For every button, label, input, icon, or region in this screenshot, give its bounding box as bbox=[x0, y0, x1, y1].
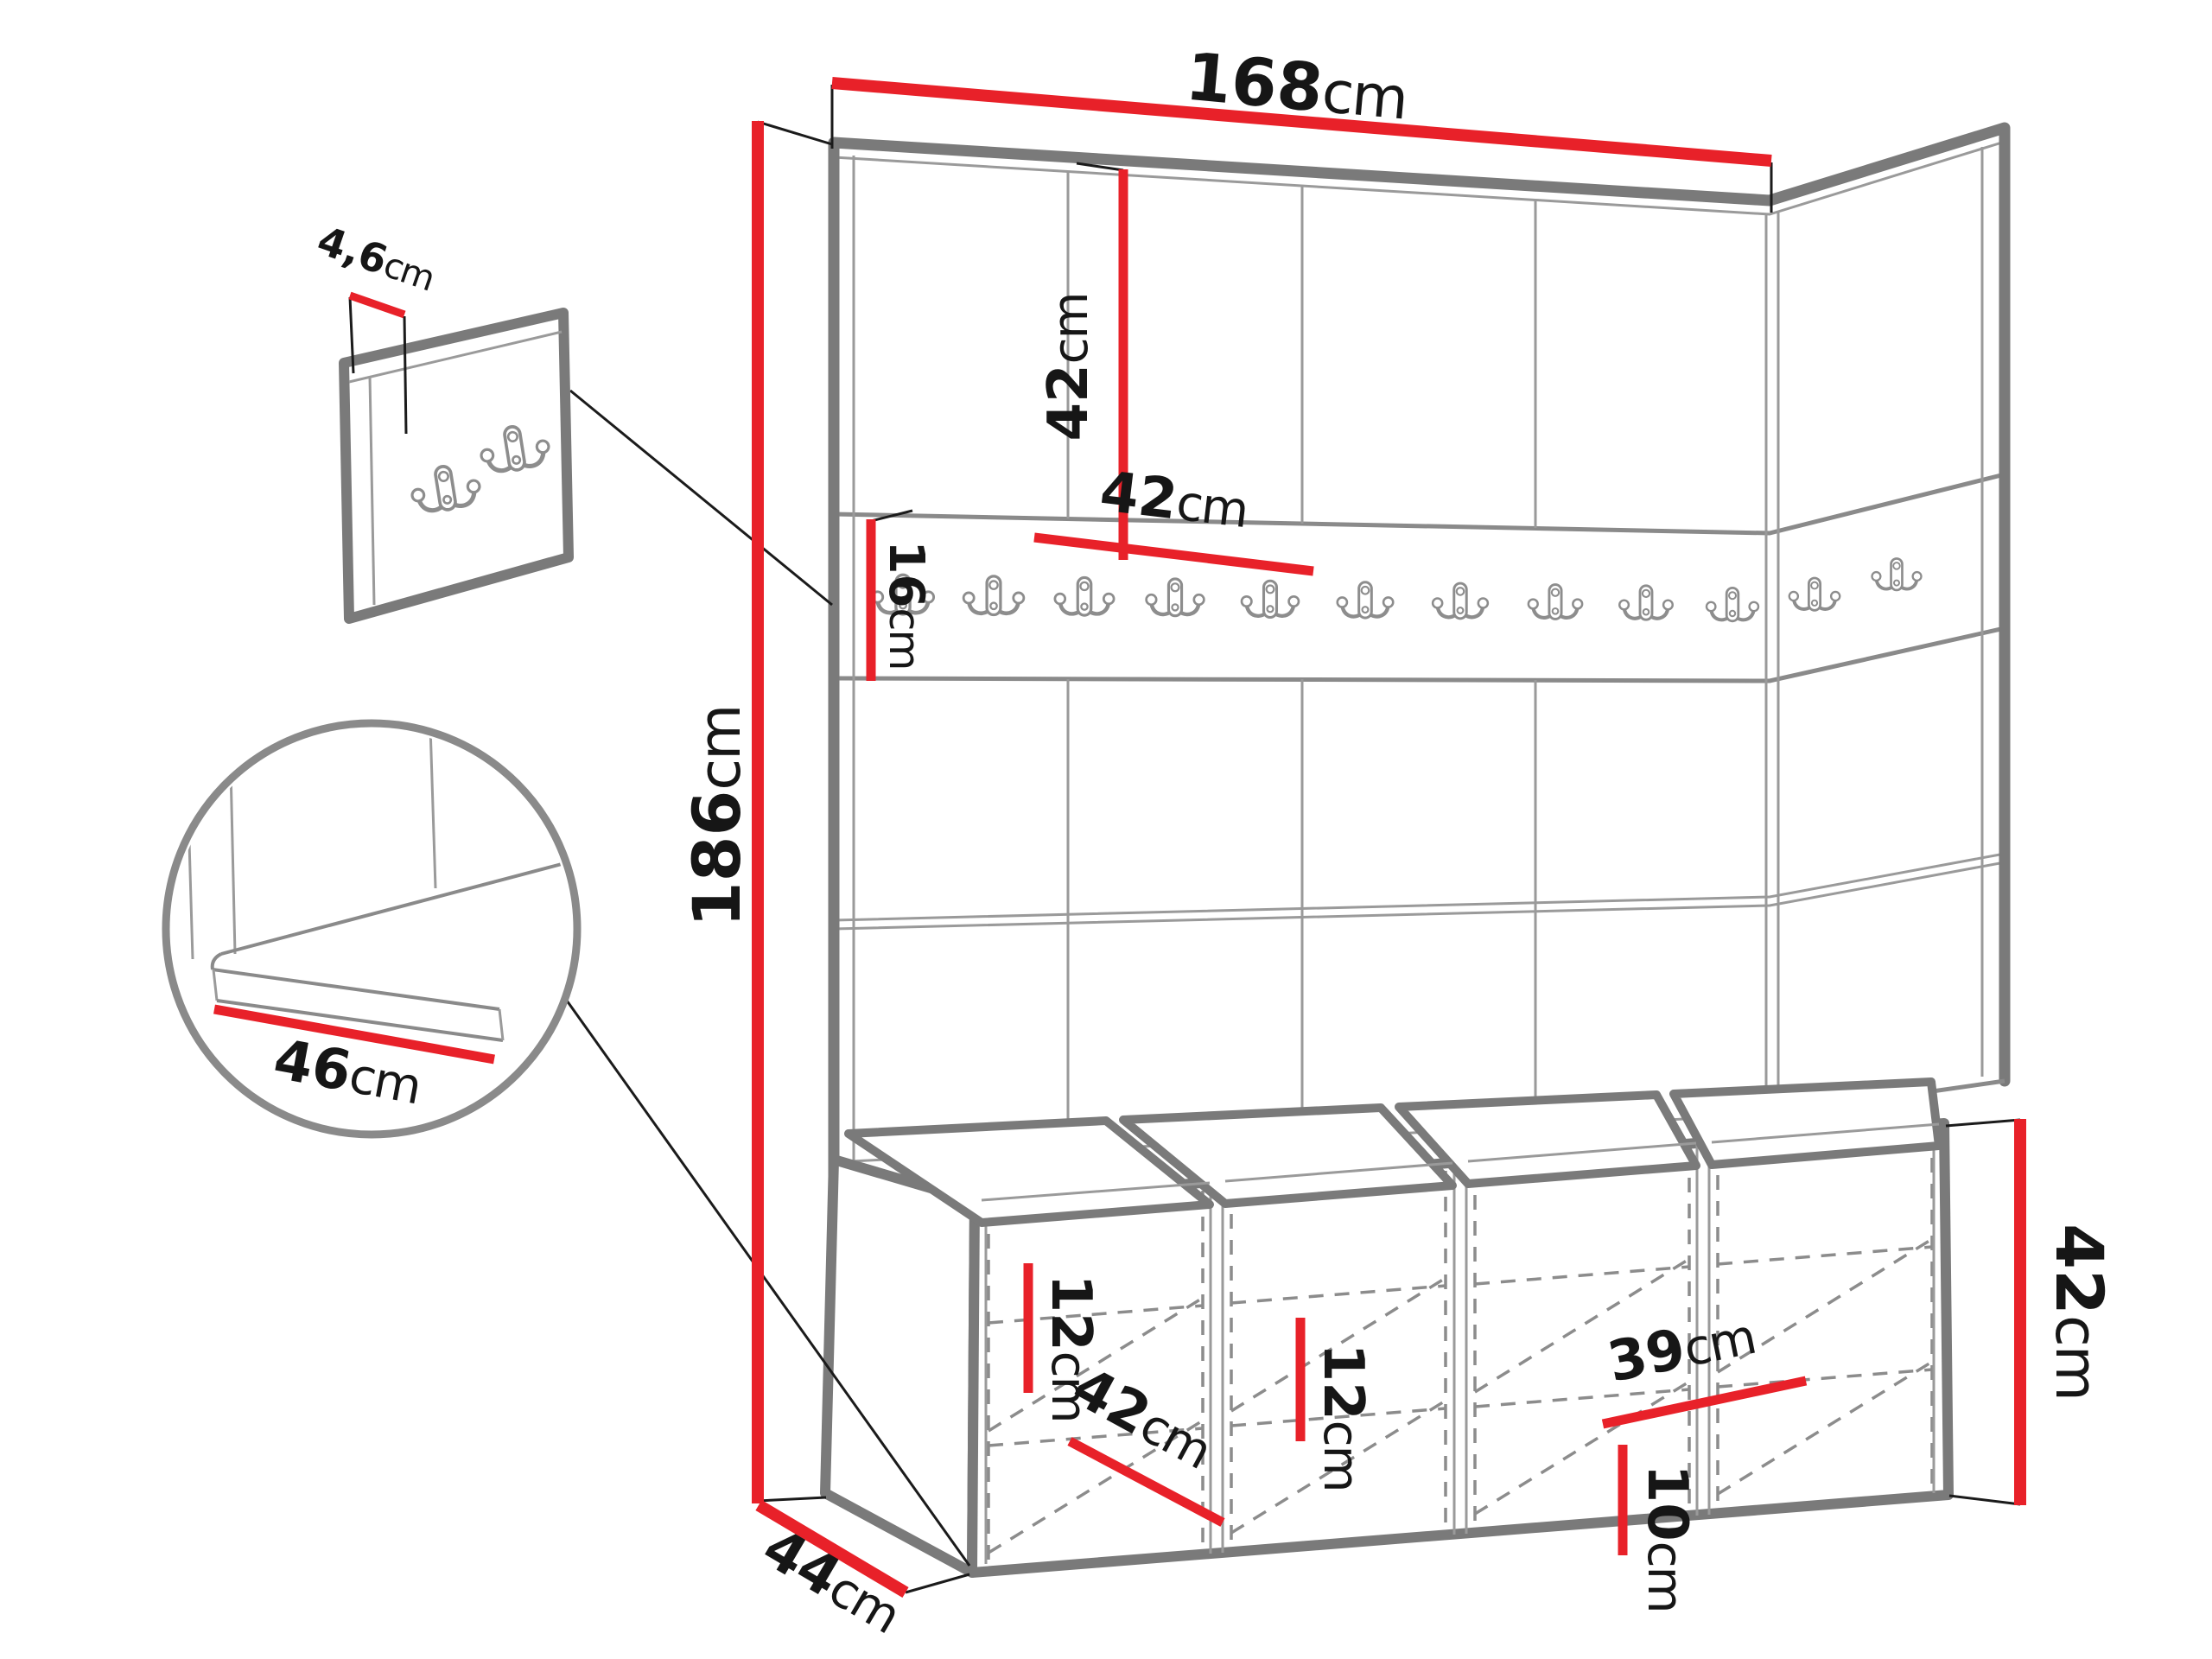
dim-total-height: 186cm bbox=[678, 121, 832, 1503]
furniture-dimension-diagram: 168cm 186cm 42cm 42cm 16cm bbox=[0, 0, 2212, 1659]
diagram-page: 168cm 186cm 42cm 42cm 16cm bbox=[0, 0, 2212, 1659]
dim-bench-height: 42cm bbox=[1946, 1119, 2118, 1505]
dim-label: 42cm bbox=[1037, 294, 1101, 442]
shoe-bench bbox=[825, 1082, 1948, 1573]
dim-label: 10cm bbox=[1635, 1465, 1699, 1612]
bench-left-side bbox=[825, 1160, 975, 1573]
dim-label: 4,6cm bbox=[312, 217, 441, 300]
dim-label: 186cm bbox=[678, 706, 755, 928]
dim-label: 42cm bbox=[2041, 1224, 2118, 1400]
dim-label: 12cm bbox=[1311, 1344, 1375, 1491]
corner-return-panel-face bbox=[1770, 128, 2005, 1115]
dim-label: 16cm bbox=[878, 540, 934, 669]
bench-cushion bbox=[1674, 1082, 1939, 1165]
callout-leader-line bbox=[570, 391, 832, 605]
